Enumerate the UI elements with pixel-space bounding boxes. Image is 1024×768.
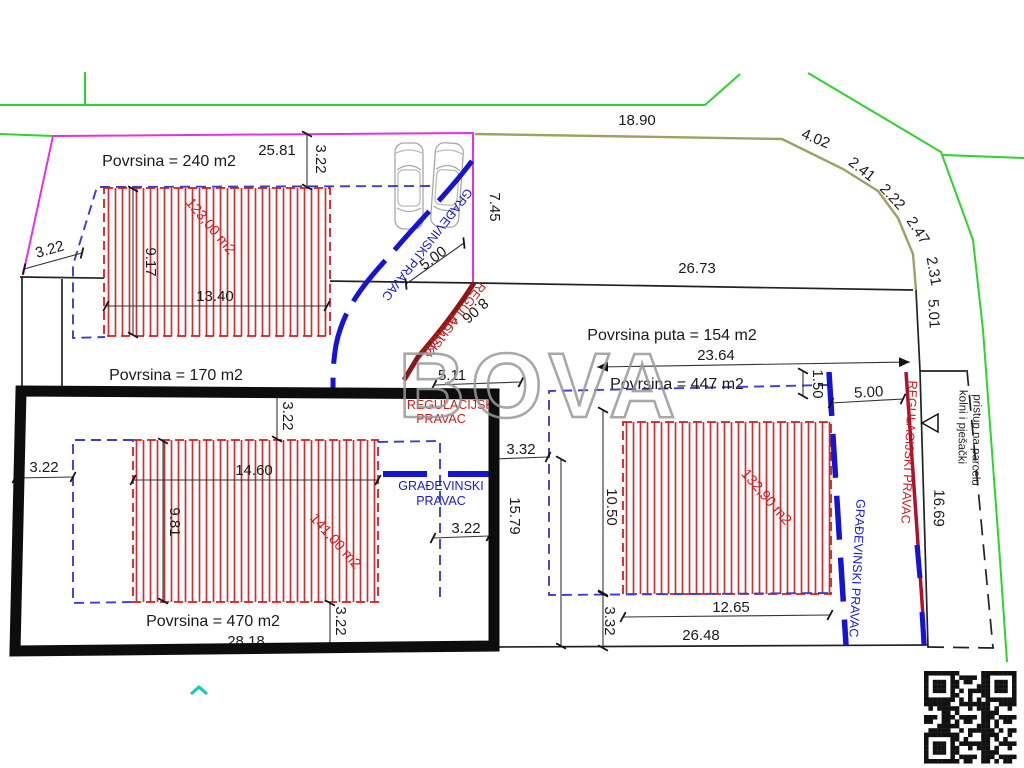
site-plan-canvas: Povrsina = 240 m2 Povrsina = 170 m2 Povr…: [0, 0, 1024, 768]
dim-9-81: 9.81: [166, 507, 183, 536]
gradjevinski-pravac-vertical-label: GRAĐEVINSKI PRAVAC: [846, 499, 867, 638]
regulacijski-line-right-blue-b: [922, 612, 924, 645]
dim-3-22-b141-right: 3.22: [451, 520, 480, 537]
watermark-logo: BOVA: [399, 335, 682, 437]
dim-3-32-mid: 3.32: [506, 441, 535, 458]
envelope-470-right: [378, 441, 440, 600]
parcel-240-label: Povrsina = 240 m2: [102, 153, 236, 170]
dim-3-22-b141-bottom: 3.22: [332, 606, 349, 635]
access-arrow-icon: [922, 414, 938, 432]
dim-10-50: 10.50: [603, 488, 620, 526]
green-road-branch: [943, 155, 1024, 158]
dim-2-22: 2.22: [876, 180, 908, 213]
dim-4-02: 4.02: [799, 125, 832, 152]
dim-25-81: 25.81: [258, 142, 296, 159]
dim-5-00-right: 5.00: [854, 383, 884, 402]
dim-5-01: 5.01: [924, 299, 943, 329]
dim-16-69: 16.69: [930, 489, 948, 527]
dim-2-31: 2.31: [923, 255, 945, 287]
green-road-left-stub: [0, 134, 53, 136]
envelope-470-left: [73, 440, 133, 603]
gradjevinski-pravac-label2: PRAVAC: [416, 494, 466, 508]
dim-26-73: 26.73: [678, 260, 716, 277]
building-123-hatch: [104, 188, 330, 336]
dim-15-79: 15.79: [506, 497, 523, 535]
gradjevinski-pravac-label1: GRAĐEVINSKI: [398, 479, 483, 493]
qr-code: [924, 671, 1017, 764]
dim-13-40: 13.40: [196, 288, 234, 305]
dim-14-60: 14.60: [235, 462, 273, 479]
dim-7-45: 7.45: [486, 192, 503, 221]
green-road-right: [808, 73, 1007, 662]
dim-26-48: 26.48: [682, 627, 720, 644]
corridor-bottom-dashed: [928, 647, 995, 648]
dim-9-17: 9.17: [142, 247, 159, 276]
green-road-top: [0, 74, 740, 105]
dim-3-22-b141-left: 3.22: [29, 459, 58, 476]
dim-23-64: 23.64: [697, 347, 735, 364]
parcel-470-label: Povrsina = 470 m2: [146, 613, 280, 630]
cyan-chevron-mark: [191, 687, 207, 694]
building-132-hatch: [623, 422, 831, 594]
dim-12-65: 12.65: [712, 599, 750, 616]
dim-3-22-b141-top: 3.22: [279, 401, 296, 430]
gradjevinski-pravac-diagonal-label: GRAĐEVINSKI PRAVAC: [379, 186, 475, 304]
regulacijski-line-right-blue-a: [917, 545, 920, 578]
site-plan-drawing: Povrsina = 240 m2 Povrsina = 170 m2 Povr…: [0, 0, 1024, 768]
dim-18-90: 18.90: [618, 112, 656, 129]
dim-3-32-right: 3.32: [601, 606, 618, 635]
access-label-line1: kolni i pješački: [955, 390, 968, 464]
parcel-170-label: Povrsina = 170 m2: [109, 367, 243, 384]
access-label-line2: pristup na parcelu: [969, 394, 983, 486]
dim-3-22-top: 3.22: [312, 144, 329, 173]
boundary-bottom: [494, 645, 928, 647]
dim-1-50: 1.50: [809, 369, 826, 398]
